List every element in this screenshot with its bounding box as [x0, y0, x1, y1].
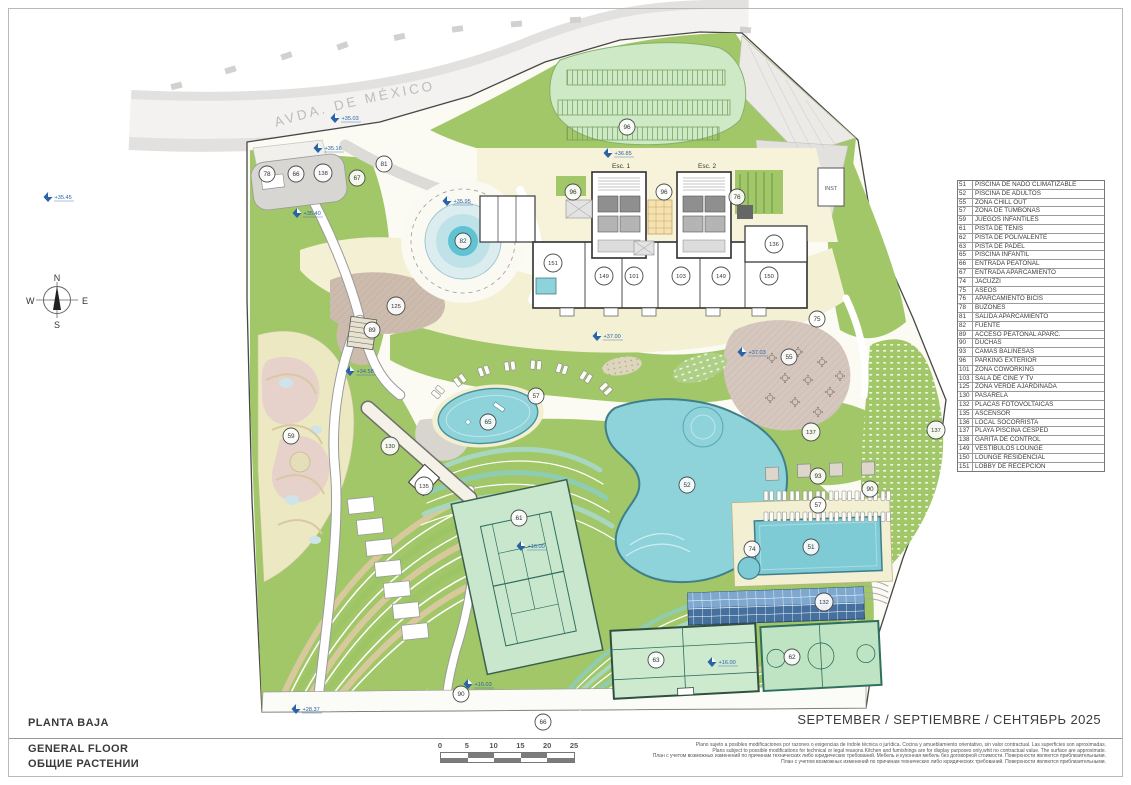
plan-marker-57: 57 — [528, 388, 544, 404]
compass-n: N — [54, 273, 61, 283]
legend-row: 150LOUNGE RESIDENCIAL — [958, 454, 1104, 463]
terrace-unit — [392, 602, 419, 620]
plan-marker-78: 78 — [259, 166, 275, 182]
svg-text:+34.58: +34.58 — [357, 369, 374, 375]
svg-text:76: 76 — [733, 194, 741, 201]
scale-segment — [494, 758, 521, 763]
legend-item-number: 51 — [958, 181, 973, 189]
date-line: SEPTEMBER / SEPTIEMBRE / СЕНТЯБРЬ 2025 — [797, 712, 1101, 727]
terrace-unit — [356, 518, 383, 536]
legend-item-number: 93 — [958, 348, 973, 356]
legend-item-number: 136 — [958, 419, 973, 427]
plan-marker-125: 125 — [387, 297, 405, 315]
svg-text:96: 96 — [623, 124, 631, 131]
plan-marker-96: 96 — [565, 184, 581, 200]
legend-item-number: 65 — [958, 251, 973, 259]
terrace-unit — [365, 539, 392, 557]
svg-text:+16.03: +16.03 — [475, 682, 492, 688]
plan-marker-93: 93 — [810, 468, 826, 484]
legend-item-label: PISCINA DE NADO CLIMATIZABLE — [973, 181, 1076, 189]
legend-item-label: ZONA VERDE AJARDINADA — [973, 383, 1057, 391]
scale-segments — [440, 752, 575, 763]
legend-item-number: 89 — [958, 331, 973, 339]
svg-text:151: 151 — [548, 261, 558, 267]
scale-tick: 20 — [543, 741, 551, 750]
legend-row: 125ZONA VERDE AJARDINADA — [958, 383, 1104, 392]
plan-sheet: AVDA. DE MÉXICO — [0, 0, 1131, 785]
legend-item-number: 66 — [958, 260, 973, 268]
svg-text:125: 125 — [391, 304, 401, 310]
svg-text:62: 62 — [788, 654, 796, 661]
scale-segment — [468, 758, 495, 763]
plan-marker-55: 55 — [781, 349, 797, 365]
legend-item-number: 149 — [958, 445, 973, 453]
legend-row: 52PISCINA DE ADULTOS — [958, 190, 1104, 199]
svg-text:75: 75 — [813, 316, 821, 323]
svg-text:96: 96 — [660, 189, 668, 196]
scale-tick: 0 — [438, 741, 442, 750]
legend-row: 51PISCINA DE NADO CLIMATIZABLE — [958, 181, 1104, 190]
plan-marker-136: 136 — [765, 235, 783, 253]
svg-text:137: 137 — [931, 428, 941, 434]
legend-item-number: 62 — [958, 234, 973, 242]
legend-row: 96PARKING EXTERIOR — [958, 357, 1104, 366]
legend-row: 89ACCESO PEATONAL APARC. — [958, 331, 1104, 340]
svg-text:+37.00: +37.00 — [604, 334, 621, 340]
svg-text:+37.03: +37.03 — [749, 350, 766, 356]
svg-text:149: 149 — [599, 274, 609, 280]
legend-item-number: 55 — [958, 199, 973, 207]
legend-item-number: 151 — [958, 463, 973, 472]
legend-item-number: 101 — [958, 366, 973, 374]
legend-item-label: ZONA DE TUMBONAS — [973, 207, 1040, 215]
svg-text:137: 137 — [806, 430, 816, 436]
legend-row: 76APARCAMIENTO BICIS — [958, 295, 1104, 304]
svg-text:96: 96 — [569, 189, 577, 196]
plan-marker-90: 90 — [453, 686, 469, 702]
parking-stalls — [558, 70, 730, 140]
svg-text:78: 78 — [263, 171, 271, 178]
plan-marker-130: 130 — [381, 437, 399, 455]
compass-e: E — [82, 296, 88, 306]
jacuzzi — [738, 557, 761, 580]
legend-row: 90DUCHAS — [958, 339, 1104, 348]
svg-text:+28.37: +28.37 — [303, 707, 320, 713]
titleblock-divider — [8, 738, 1123, 739]
legend-row: 151LOBBY DE RECEPCIÓN — [958, 463, 1104, 472]
legend-item-label: SALIDA APARCAMIENTO — [973, 313, 1048, 321]
title-english: GENERAL FLOOR — [28, 743, 128, 755]
stair-2-label: Esc. 2 — [698, 163, 716, 170]
svg-text:66: 66 — [292, 171, 300, 178]
disclaimer-block: Plano sujeto a posibles modificaciones p… — [560, 743, 1106, 765]
plan-marker-135: 135 — [415, 477, 433, 495]
legend-item-label: JUEGOS INFANTILES — [973, 216, 1039, 224]
legend-row: 57ZONA DE TUMBONAS — [958, 207, 1104, 216]
terrace-unit — [374, 560, 401, 578]
disclaimer-ru2: План с учетом возможных изменений по при… — [560, 760, 1106, 766]
svg-text:136: 136 — [769, 242, 779, 248]
plan-marker-65: 65 — [480, 414, 496, 430]
legend-item-number: 67 — [958, 269, 973, 277]
legend-item-label: ACCESO PEATONAL APARC. — [973, 331, 1061, 339]
legend-row: 59JUEGOS INFANTILES — [958, 216, 1104, 225]
svg-text:+35.16: +35.16 — [325, 146, 342, 152]
scale-tick: 15 — [516, 741, 524, 750]
legend-item-number: 78 — [958, 304, 973, 312]
legend-item-number: 63 — [958, 243, 973, 251]
legend-row: 82FUENTE — [958, 322, 1104, 331]
svg-text:101: 101 — [629, 274, 639, 280]
plan-marker-51: 51 — [803, 539, 819, 555]
title-russian: ОБЩИЕ РАСТЕНИИ — [28, 758, 139, 770]
legend-item-label: ZONA COWORKING — [973, 366, 1034, 374]
scale-tick: 10 — [489, 741, 497, 750]
legend-item-number: 138 — [958, 436, 973, 444]
legend-item-label: ASCENSOR — [973, 410, 1010, 418]
legend-row: 62PISTA DE POLIVALENTE — [958, 234, 1104, 243]
terrace-unit — [347, 497, 374, 515]
legend-row: 55ZONA CHILL OUT — [958, 199, 1104, 208]
legend-item-number: 137 — [958, 427, 973, 435]
svg-text:+35.95: +35.95 — [454, 199, 471, 205]
scale-segment — [521, 758, 548, 763]
plan-marker-138: 138 — [314, 164, 332, 182]
svg-text:+35.45: +35.45 — [55, 195, 72, 201]
svg-text:130: 130 — [385, 444, 395, 450]
legend-item-label: DUCHAS — [973, 339, 1002, 347]
legend-row: 101ZONA COWORKING — [958, 366, 1104, 375]
plan-marker-66: 66 — [535, 714, 551, 730]
terrace-unit — [383, 581, 410, 599]
svg-text:138: 138 — [318, 171, 328, 177]
svg-text:57: 57 — [532, 393, 540, 400]
svg-text:65: 65 — [484, 419, 492, 426]
plan-marker-150: 150 — [760, 267, 778, 285]
svg-text:150: 150 — [764, 274, 774, 280]
legend-item-label: LOBBY DE RECEPCIÓN — [973, 463, 1046, 472]
legend-item-number: 90 — [958, 339, 973, 347]
legend-item-label: PASARELA — [973, 392, 1008, 400]
svg-text:55: 55 — [785, 354, 793, 361]
plan-marker-63: 63 — [648, 652, 664, 668]
legend-item-label: ZONA CHILL OUT — [973, 199, 1027, 207]
compass-s: S — [54, 320, 60, 330]
plan-marker-89: 89 — [364, 322, 380, 338]
plan-marker-149: 149 — [595, 267, 613, 285]
compass-rose: N E S W — [26, 273, 88, 330]
plan-marker-67: 67 — [349, 170, 365, 186]
plan-marker-76: 76 — [729, 189, 745, 205]
plan-marker-66: 66 — [288, 166, 304, 182]
legend-row: 136LOCAL SOCORRISTA — [958, 419, 1104, 428]
svg-text:89: 89 — [368, 327, 376, 334]
plan-marker-149: 149 — [712, 267, 730, 285]
svg-text:52: 52 — [683, 482, 691, 489]
legend-row: 103SALA DE CINE Y TV — [958, 375, 1104, 384]
legend-item-number: 150 — [958, 454, 973, 462]
legend-item-number: 103 — [958, 375, 973, 383]
svg-text:+36.85: +36.85 — [615, 151, 632, 157]
legend-item-number: 135 — [958, 410, 973, 418]
legend-item-number: 52 — [958, 190, 973, 198]
svg-text:61: 61 — [515, 515, 523, 522]
legend-item-label: PISTA DE TENIS — [973, 225, 1023, 233]
svg-text:INST: INST — [825, 186, 838, 192]
legend-row: 61PISTA DE TENIS — [958, 225, 1104, 234]
plan-marker-74: 74 — [744, 541, 760, 557]
svg-text:81: 81 — [380, 161, 388, 168]
scale-segment — [441, 758, 468, 763]
svg-text:51: 51 — [807, 544, 815, 551]
svg-text:103: 103 — [676, 274, 686, 280]
legend-row: 138GARITA DE CONTROL — [958, 436, 1104, 445]
legend-row: 132PLACAS FOTOVOLTAICAS — [958, 401, 1104, 410]
legend-item-label: PISCINA INFANTIL — [973, 251, 1029, 259]
legend-item-label: ENTRADA APARCAMIENTO — [973, 269, 1056, 277]
svg-text:90: 90 — [866, 486, 874, 493]
legend-item-label: VESTÍBULOS LOUNGE — [973, 445, 1043, 453]
legend-item-number: 74 — [958, 278, 973, 286]
plan-marker-96: 96 — [619, 119, 635, 135]
padel-court — [610, 623, 758, 698]
multisport-court — [760, 621, 881, 691]
legend-item-label: GARITA DE CONTROL — [973, 436, 1041, 444]
svg-text:67: 67 — [353, 175, 361, 182]
legend-item-label: PISTA DE PADEL — [973, 243, 1025, 251]
legend-row: 67ENTRADA APARCAMIENTO — [958, 269, 1104, 278]
svg-text:+35.40: +35.40 — [304, 211, 321, 217]
legend-item-label: PLACAS FOTOVOLTAICAS — [973, 401, 1053, 409]
legend-row: 93CAMAS BALINESAS — [958, 348, 1104, 357]
legend-item-number: 59 — [958, 216, 973, 224]
plan-marker-137: 137 — [802, 423, 820, 441]
legend-row: 65PISCINA INFANTIL — [958, 251, 1104, 260]
legend-item-label: CAMAS BALINESAS — [973, 348, 1034, 356]
svg-text:135: 135 — [419, 484, 429, 490]
legend-item-label: JACUZZI — [973, 278, 1001, 286]
legend-item-label: ENTRADA PEATONAL — [973, 260, 1040, 268]
plan-marker-82: 82 — [455, 233, 471, 249]
legend-panel: 51PISCINA DE NADO CLIMATIZABLE52PISCINA … — [957, 180, 1105, 472]
stair-core-2 — [677, 172, 731, 258]
legend-row: 137PLAYA PISCINA CESPED — [958, 427, 1104, 436]
plan-marker-62: 62 — [784, 649, 800, 665]
elevation-marker: +35.45 — [44, 192, 75, 202]
legend-item-number: 76 — [958, 295, 973, 303]
svg-text:66: 66 — [539, 719, 547, 726]
plan-marker-101: 101 — [625, 267, 643, 285]
legend-row: 66ENTRADA PEATONAL — [958, 260, 1104, 269]
svg-text:132: 132 — [819, 600, 829, 606]
compass-w: W — [26, 296, 35, 306]
legend-row: 130PASARELA — [958, 392, 1104, 401]
legend-item-number: 81 — [958, 313, 973, 321]
plan-marker-57: 57 — [810, 497, 826, 513]
terrace-unit — [401, 623, 428, 641]
svg-text:+16.00: +16.00 — [528, 544, 545, 550]
legend-item-label: APARCAMIENTO BICIS — [973, 295, 1043, 303]
title-spanish: PLANTA BAJA — [28, 717, 109, 729]
solar-panels — [687, 587, 864, 625]
plan-marker-61: 61 — [511, 510, 527, 526]
legend-item-label: ASEOS — [973, 287, 997, 295]
legend-row: 74JACUZZI — [958, 278, 1104, 287]
legend-item-number: 125 — [958, 383, 973, 391]
svg-text:57: 57 — [814, 502, 822, 509]
svg-text:74: 74 — [748, 546, 756, 553]
stair-1-label: Esc. 1 — [612, 163, 630, 170]
svg-text:90: 90 — [457, 691, 465, 698]
legend-item-label: SALA DE CINE Y TV — [973, 375, 1033, 383]
plan-marker-151: 151 — [544, 254, 562, 272]
plan-marker-96: 96 — [656, 184, 672, 200]
legend-row: 63PISTA DE PADEL — [958, 243, 1104, 252]
legend-item-label: PLAYA PISCINA CESPED — [973, 427, 1048, 435]
exterior-parking — [550, 43, 746, 145]
legend-item-label: LOUNGE RESIDENCIAL — [973, 454, 1045, 462]
legend-item-label: BUZONES — [973, 304, 1005, 312]
plan-marker-103: 103 — [672, 267, 690, 285]
svg-text:82: 82 — [459, 238, 467, 245]
plan-marker-81: 81 — [376, 156, 392, 172]
legend-item-label: PISCINA DE ADULTOS — [973, 190, 1041, 198]
plan-marker-52: 52 — [679, 477, 695, 493]
legend-item-label: PISTA DE POLIVALENTE — [973, 234, 1047, 242]
plan-marker-75: 75 — [809, 311, 825, 327]
plan-marker-59: 59 — [283, 428, 299, 444]
plan-marker-137: 137 — [927, 421, 945, 439]
legend-item-number: 75 — [958, 287, 973, 295]
legend-item-number: 57 — [958, 207, 973, 215]
legend-item-label: PARKING EXTERIOR — [973, 357, 1037, 365]
legend-row: 149VESTÍBULOS LOUNGE — [958, 445, 1104, 454]
scale-tick: 5 — [465, 741, 469, 750]
svg-text:63: 63 — [652, 657, 660, 664]
svg-text:59: 59 — [287, 433, 295, 440]
legend-row: 81SALIDA APARCAMIENTO — [958, 313, 1104, 322]
legend-item-number: 96 — [958, 357, 973, 365]
legend-item-number: 132 — [958, 401, 973, 409]
legend-item-label: FUENTE — [973, 322, 1000, 330]
plan-marker-90: 90 — [862, 481, 878, 497]
inst-box: INST — [818, 168, 844, 206]
legend-row: 78BUZONES — [958, 304, 1104, 313]
legend-row: 135ASCENSOR — [958, 410, 1104, 419]
legend-item-number: 82 — [958, 322, 973, 330]
svg-text:+16.00: +16.00 — [719, 660, 736, 666]
legend-item-number: 130 — [958, 392, 973, 400]
svg-text:93: 93 — [814, 473, 822, 480]
svg-text:+35.03: +35.03 — [342, 116, 359, 122]
legend-item-label: LOCAL SOCORRISTA — [973, 419, 1038, 427]
legend-item-number: 61 — [958, 225, 973, 233]
legend-row: 75ASEOS — [958, 287, 1104, 296]
svg-text:149: 149 — [716, 274, 726, 280]
plan-marker-132: 132 — [815, 593, 833, 611]
